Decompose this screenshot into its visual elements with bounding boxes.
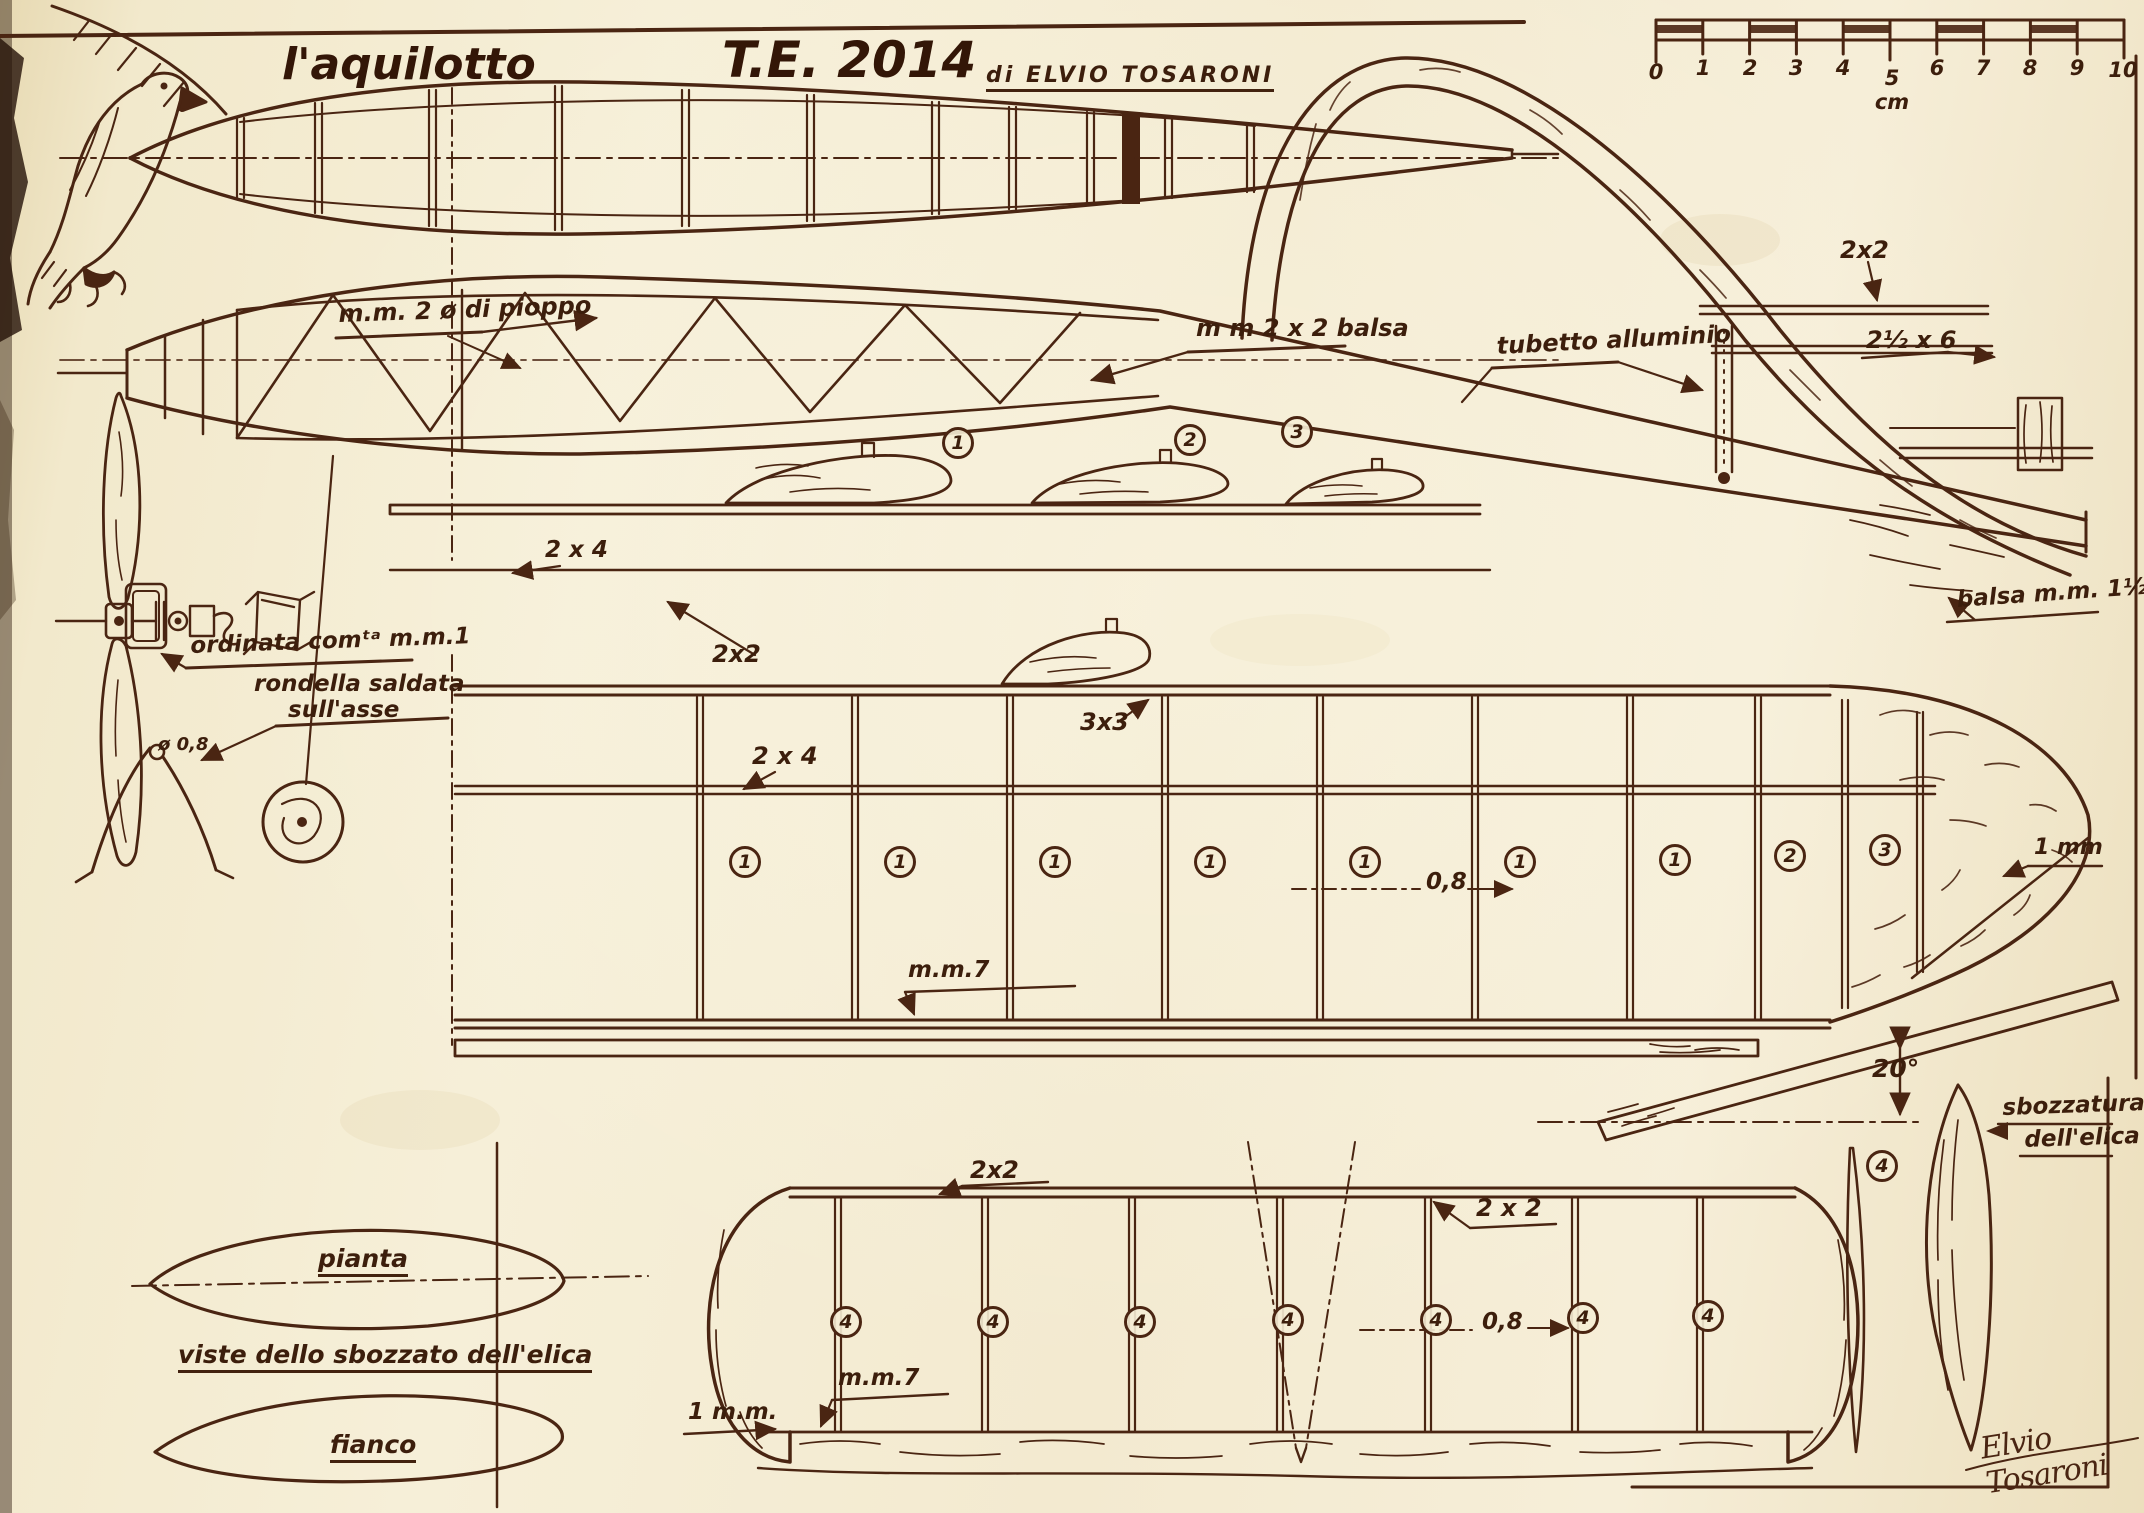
label-dihedral-20deg: 20°: [1872, 1056, 1919, 1082]
plan-title: l'aquilotto: [282, 42, 536, 88]
ruler-tick-9: 9: [2060, 56, 2094, 80]
wing-rib-number: 2: [1774, 840, 1806, 872]
plan-drawing: [0, 0, 2144, 1513]
scale-ruler: [1656, 20, 2124, 62]
wing-rib-number: 1: [1504, 846, 1536, 878]
wing-rib-number: 1: [884, 846, 916, 878]
label-spar-front-2x4: 2 x 4: [545, 538, 608, 562]
ruler-tick-1: 1: [1686, 56, 1720, 80]
label-viste-sbozzato: viste dello sbozzato dell'elica: [178, 1342, 592, 1373]
stab-rib-number: 4: [830, 1306, 862, 1338]
stab-rib-number: 4: [1692, 1300, 1724, 1332]
label-stab-tip-1mm: 1 m.m.: [688, 1400, 777, 1424]
ruler-tick-5cm: 5 cm: [1866, 66, 1918, 114]
stab-rib-number: 4: [1567, 1302, 1599, 1334]
label-seat-2.5x6: 2½ x 6: [1866, 328, 1956, 353]
fin-rib-number: 4: [1866, 1150, 1898, 1182]
label-stab-2x2-a: 2x2: [970, 1158, 1019, 1183]
label-rondella-line2: sull'asse: [288, 698, 399, 722]
ruler-tick-6: 6: [1920, 56, 1954, 80]
ruler-tick-4: 4: [1826, 56, 1860, 80]
sheet-border-rules: [0, 22, 2136, 1507]
label-longeron-2x2: 2x2: [712, 642, 761, 667]
label-fin-2x2: 2x2: [1840, 238, 1889, 263]
plan-model-number: T.E. 2014: [722, 34, 976, 87]
wing-rib-number: 1: [1659, 844, 1691, 876]
ruler-tick-7: 7: [1966, 56, 2000, 80]
label-tip-1mm: 1 mm: [2034, 836, 2103, 859]
wing-rib-number: 1: [1039, 846, 1071, 878]
stab-rib-number: 4: [1420, 1304, 1452, 1336]
label-rondella-line1: rondella saldata: [254, 672, 464, 696]
label-wire-gauge: ø 0,8: [158, 736, 209, 755]
label-le-3x3: 3x3: [1080, 710, 1129, 735]
ruler-tick-3: 3: [1779, 56, 1813, 80]
stab-rib-number: 4: [1124, 1306, 1156, 1338]
wing-front-view: [455, 982, 2118, 1140]
wing-rib-number: 1: [729, 846, 761, 878]
section-number-2: 2: [1174, 424, 1206, 456]
label-fianco: fianco: [330, 1432, 416, 1463]
ruler-tick-10: 10: [2106, 58, 2140, 82]
label-wing-gap-08: 0,8: [1426, 870, 1467, 894]
ruler-tick-2: 2: [1733, 56, 1767, 80]
section-number-3: 3: [1281, 416, 1313, 448]
wing-plan-view: [452, 655, 2090, 1045]
stab-rib-number: 4: [1272, 1304, 1304, 1336]
wing-rib-number: 3: [1869, 834, 1901, 866]
label-sbozzatura-line2: dell'elica: [2024, 1124, 2140, 1152]
ruler-tick-8: 8: [2013, 56, 2047, 80]
ruler-tick-0: 0: [1639, 60, 1673, 84]
plan-sheet: l'aquilotto T.E. 2014 di ELVIO TOSARONI …: [0, 0, 2144, 1513]
paper-edge-artifacts: [0, 0, 1780, 1513]
label-wing-te-mm7: m.m.7: [908, 958, 989, 982]
label-stab-gap-08: 0,8: [1482, 1310, 1523, 1334]
label-spar-2x4: 2 x 4: [752, 744, 818, 769]
label-sbozzatura-line1: sbozzatura: [2002, 1091, 2144, 1120]
wing-rib-number: 1: [1194, 846, 1226, 878]
section-number-1: 1: [942, 427, 974, 459]
wing-rib-number: 1: [1349, 846, 1381, 878]
label-stab-te-mm7: m.m.7: [838, 1366, 919, 1390]
label-stab-2x2-b: 2 x 2: [1476, 1196, 1542, 1221]
stab-rib-number: 4: [977, 1306, 1009, 1338]
stabilizer-plan: [709, 1085, 2008, 1478]
label-balsa-2x2: m m 2 x 2 balsa: [1196, 316, 1409, 341]
author-byline: di ELVIO TOSARONI: [986, 64, 1274, 92]
label-pianta: pianta: [318, 1246, 408, 1277]
